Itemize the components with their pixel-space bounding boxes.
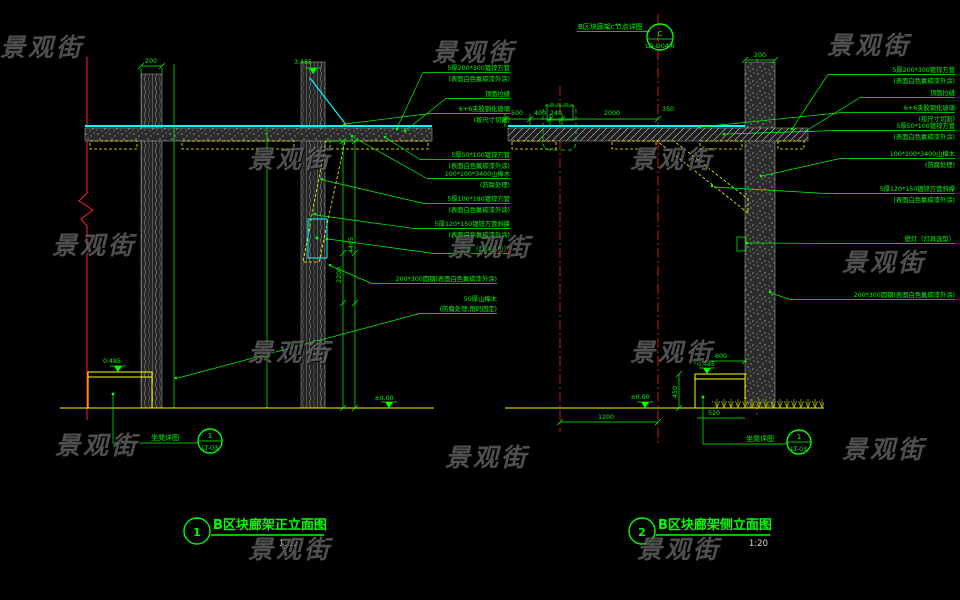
diagonal-brace xyxy=(657,141,748,213)
break-line xyxy=(79,57,93,420)
label-post-treat: (防腐处理) xyxy=(480,180,510,189)
level-top: 3.485 xyxy=(294,59,312,66)
beam-batten xyxy=(700,141,742,149)
dim-span: 1200 xyxy=(598,414,614,421)
node-detail-ref: LD-D04.6 xyxy=(645,43,675,50)
cad-drawing-canvas: 200 4485 2200 3.485 0.485 ±0.00 5厚200*30 xyxy=(0,0,960,600)
label-bench-treat: (防腐处理,角码固定) xyxy=(440,304,497,313)
left-title-block: 1 B区块廊架正立面图 1:20 xyxy=(184,517,327,549)
column xyxy=(745,62,775,408)
label-brace: 5厚120*150镀锌方管斜撑 xyxy=(880,184,956,193)
bench-detail-number: 1 xyxy=(797,433,801,441)
label-glass-cut: (按尺寸切割) xyxy=(919,114,955,123)
label-beam: 5厚200*300镀锌方管 xyxy=(892,65,955,74)
node-detail-number: C xyxy=(658,30,663,38)
left-view-scale: 1:20 xyxy=(279,539,298,549)
right-elevation: B区块廊架c节点详图 C LD-D04.6 500 400 240 2000 3… xyxy=(502,14,956,549)
dim-350: 350 xyxy=(662,106,674,113)
label-beam: 5厚200*300镀锌方管 xyxy=(447,63,510,72)
beam-batten xyxy=(182,141,294,149)
right-view-scale: 1:20 xyxy=(749,539,768,549)
right-node-tag: B区块廊架c节点详图 C LD-D04.6 xyxy=(577,22,675,50)
beam-batten xyxy=(512,141,556,149)
right-structure xyxy=(505,14,824,446)
label-brace-finish: (表面白色氟碳漆外涂) xyxy=(448,230,510,239)
label-steel: 200*300圆钢(表面白色氟碳漆外涂) xyxy=(396,274,497,283)
bench-detail-ref: LT-03 xyxy=(202,445,218,452)
beam-batten xyxy=(778,141,804,149)
drawing-sheet: 200 4485 2200 3.485 0.485 ±0.00 5厚200*30 xyxy=(0,0,960,600)
bench-detail-label: 坐凳详图 xyxy=(746,434,774,443)
dim-bench-height: 450 xyxy=(672,386,679,398)
right-labels: 5厚200*300镀锌方管 (表面白色氟碳漆外涂) 顶面拉缝 6+6夹胶钢化玻璃… xyxy=(854,65,956,299)
label-beam2: 5厚100*180镀锌方管 xyxy=(447,194,510,203)
column-left xyxy=(141,74,162,408)
label-post-treat: (防腐处理) xyxy=(925,160,955,169)
level-ground: ±0.00 xyxy=(630,394,649,401)
bench-detail-ref: LT-03 xyxy=(791,446,807,453)
right-dimensions: 500 400 240 2000 350 200 600 450 520 120… xyxy=(502,52,778,425)
level-bench: 0.485 xyxy=(103,358,121,365)
grass-hatch xyxy=(712,396,824,408)
right-levels: 0.485 ±0.00 xyxy=(630,361,715,408)
label-glass: 6+6夹胶钢化玻璃 xyxy=(459,104,510,113)
label-post: 100*100*3400山樟木 xyxy=(890,149,956,158)
label-glass: 6+6夹胶钢化玻璃 xyxy=(904,103,955,112)
label-brace: 5厚120*150镀锌方管斜撑 xyxy=(435,219,511,228)
label-beam2-finish: (表面白色氟碳漆外涂) xyxy=(448,205,510,214)
left-bench-tag: 坐凳详图 1 LT-03 xyxy=(112,393,222,453)
dim-240: 240 xyxy=(550,110,562,117)
beam-batten xyxy=(90,141,137,149)
dim-400: 400 xyxy=(534,110,546,117)
right-title-block: 2 B区块廊架侧立面图 1:20 xyxy=(629,517,772,549)
dim-500: 500 xyxy=(511,110,523,117)
dim-col-width: 200 xyxy=(754,52,766,59)
dim-2000: 2000 xyxy=(604,110,620,117)
right-view-number: 2 xyxy=(638,526,646,539)
label-bench-wood: 50厚山樟木 xyxy=(464,294,498,303)
bench-detail-label: 坐凳详图 xyxy=(151,433,179,442)
left-structure xyxy=(60,57,434,420)
label-groove: 顶面拉缝 xyxy=(930,88,956,97)
label-beam-finish: (表面白色氟碳漆外涂) xyxy=(448,74,510,83)
node-detail-label: B区块廊架c节点详图 xyxy=(578,22,643,31)
dim-height-total: 4485 xyxy=(348,237,355,253)
top-beam xyxy=(85,128,432,141)
dim-bench-bottom: 520 xyxy=(708,410,720,417)
label-purlin-finish: (表面白色氟碳漆外涂) xyxy=(448,161,510,170)
left-labels: 5厚200*300镀锌方管 (表面白色氟碳漆外涂) 顶面拉缝 6+6夹胶钢化玻璃… xyxy=(396,63,511,313)
label-lamp: 壁灯（灯具选型） xyxy=(905,234,955,243)
label-beam-finish: (表面白色氟碳漆外涂) xyxy=(893,76,955,85)
right-view-title: B区块廊架侧立面图 xyxy=(658,517,772,533)
level-ground: ±0.00 xyxy=(374,395,393,402)
left-view-number: 1 xyxy=(193,526,201,539)
dim-bench-top: 600 xyxy=(715,353,727,360)
label-steel: 200*300圆钢(表面白色氟碳漆外涂) xyxy=(854,290,955,299)
bench-detail-number: 1 xyxy=(208,432,212,440)
column-right xyxy=(301,62,325,408)
left-elevation: 200 4485 2200 3.485 0.485 ±0.00 5厚200*30 xyxy=(60,57,511,549)
left-view-title: B区块廊架正立面图 xyxy=(213,517,327,533)
wall-lamp xyxy=(737,237,746,251)
beam-batten xyxy=(612,141,656,149)
label-post: 100*100*3400山樟木 xyxy=(445,169,511,178)
label-groove: 顶面拉缝 xyxy=(485,89,511,98)
label-lamp: 壁灯（灯具选型） xyxy=(460,244,510,253)
lamp-dot xyxy=(316,237,319,240)
top-beam xyxy=(508,128,808,141)
label-purlin: 5厚50*100镀锌方管 xyxy=(451,150,510,159)
dim-col-width: 200 xyxy=(145,58,157,65)
label-brace-finish: (表面白色氟碳漆外涂) xyxy=(893,195,955,204)
label-purlin: 5厚50*100镀锌方管 xyxy=(896,121,955,130)
level-bench: 0.485 xyxy=(697,361,715,368)
label-purlin-finish: (表面白色氟碳漆外涂) xyxy=(893,132,955,141)
